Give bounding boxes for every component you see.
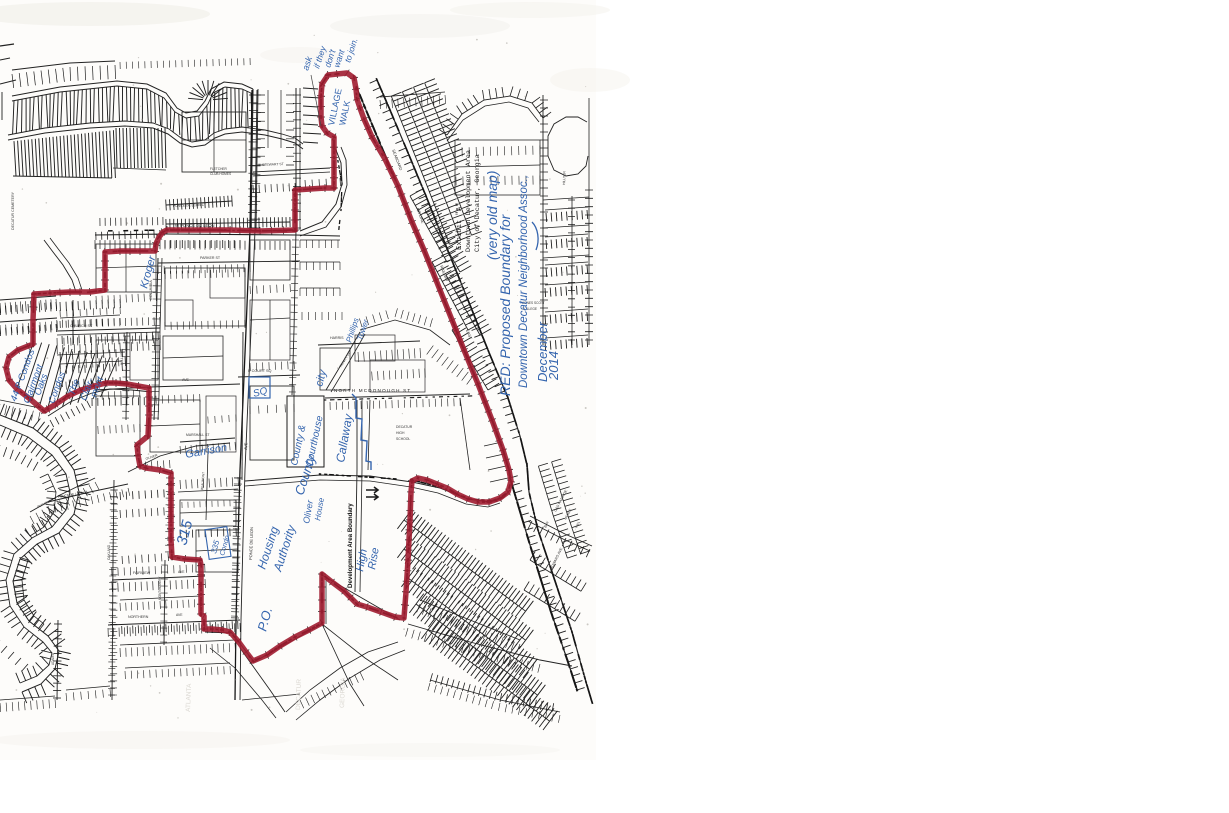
- svg-text:DECATUR: DECATUR: [295, 679, 303, 710]
- svg-text:Exhibit "A": Exhibit "A": [456, 203, 464, 250]
- svg-text:Downtown Decatur Neighborhood: Downtown Decatur Neighborhood Assoc.,: [518, 175, 530, 388]
- svg-text:FLETCHER: FLETCHER: [210, 167, 228, 171]
- svg-text:E COURT SQ: E COURT SQ: [248, 369, 272, 373]
- svg-text:HIGH: HIGH: [396, 431, 405, 435]
- svg-text:Development Area Boundary: Development Area Boundary: [347, 503, 354, 588]
- svg-text:SCHOOL: SCHOOL: [396, 437, 410, 441]
- svg-text:DECATUR: DECATUR: [396, 425, 413, 429]
- svg-text:HARRIS: HARRIS: [330, 336, 344, 340]
- svg-text:MARSHALL ST: MARSHALL ST: [186, 433, 209, 437]
- svg-text:AVE: AVE: [244, 442, 248, 450]
- svg-text:NORTHERN: NORTHERN: [128, 615, 149, 619]
- svg-text:CHURCH ST: CHURCH ST: [70, 324, 93, 328]
- svg-text:OAKLAND: OAKLAND: [107, 544, 111, 560]
- svg-text:AVE: AVE: [178, 570, 185, 574]
- svg-text:DECATUR CEMETERY: DECATUR CEMETERY: [11, 191, 15, 230]
- svg-text:ATLANTA: ATLANTA: [185, 683, 193, 712]
- svg-text:2014: 2014: [546, 351, 561, 381]
- svg-text:AVE: AVE: [176, 613, 183, 617]
- svg-text:RED: Proposed Boundary for: RED: Proposed Boundary for: [497, 213, 513, 396]
- svg-text:Downtown Development Area: Downtown Development Area: [465, 150, 473, 252]
- svg-text:PARKER ST: PARKER ST: [200, 256, 221, 260]
- svg-text:HILLYER: HILLYER: [562, 170, 567, 185]
- svg-text:ADAMS: ADAMS: [51, 654, 55, 665]
- svg-text:City of Decatur, Georgia: City of Decatur, Georgia: [474, 154, 482, 252]
- svg-text:FAIRVIEW: FAIRVIEW: [133, 571, 151, 575]
- svg-text:GEORGIA: GEORGIA: [339, 677, 347, 708]
- svg-text:CLUB HOMES: CLUB HOMES: [210, 172, 231, 176]
